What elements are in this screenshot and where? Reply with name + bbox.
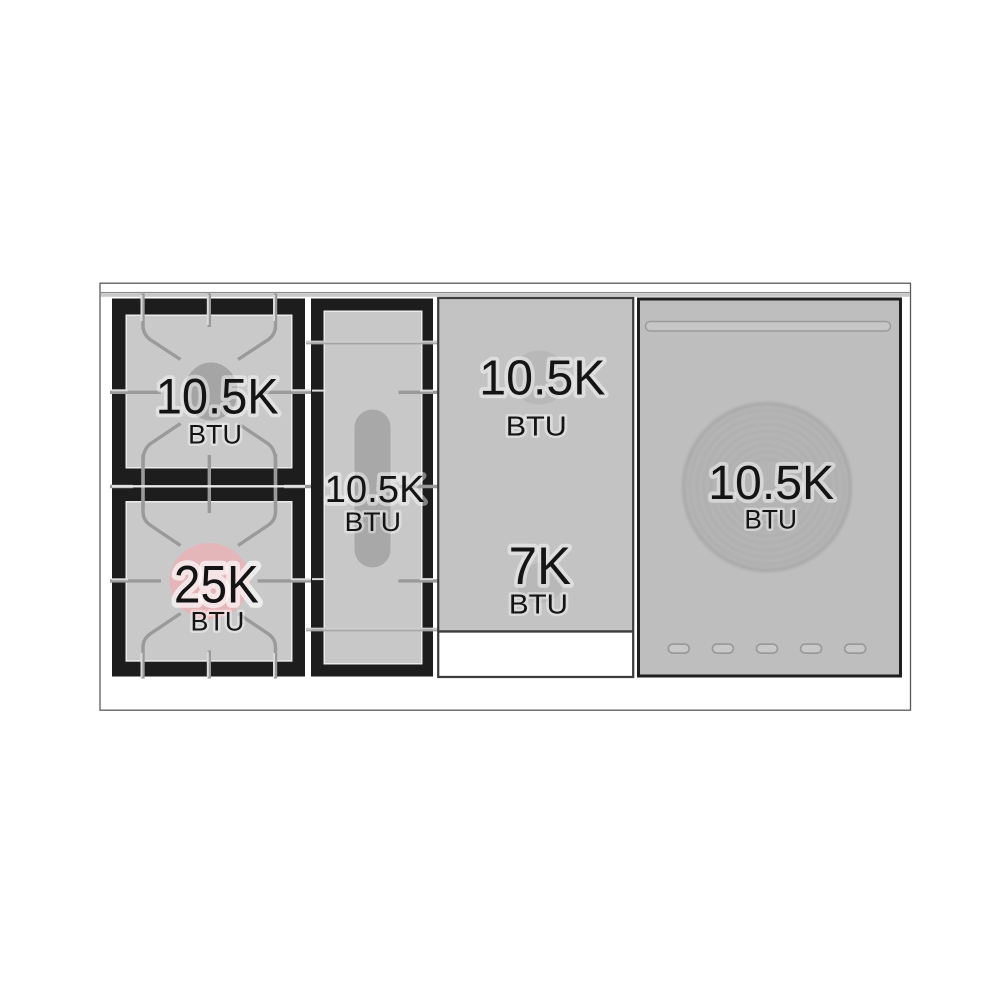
svg-text:7K: 7K	[509, 537, 572, 596]
svg-text:BTU: BTU	[191, 607, 245, 637]
svg-text:10.5K: 10.5K	[325, 469, 425, 511]
svg-text:10.5K: 10.5K	[708, 456, 834, 510]
svg-text:BTU: BTU	[345, 507, 402, 537]
svg-text:BTU: BTU	[188, 420, 242, 450]
svg-text:BTU: BTU	[509, 589, 568, 620]
svg-text:10.5K: 10.5K	[156, 369, 279, 425]
svg-text:BTU: BTU	[506, 411, 567, 442]
svg-text:10.5K: 10.5K	[479, 352, 606, 406]
svg-text:BTU: BTU	[744, 505, 797, 535]
